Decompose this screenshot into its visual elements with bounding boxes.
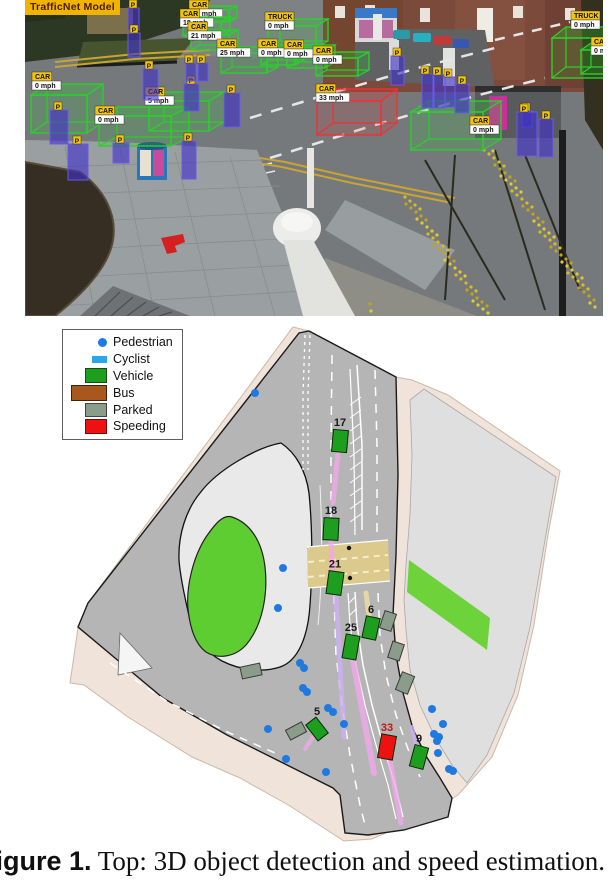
tag-text: 0 mph bbox=[316, 57, 337, 64]
map-pedestrian-dot bbox=[329, 708, 337, 716]
svg-text:P: P bbox=[544, 113, 549, 120]
camera-photo: TrafficNet Model bbox=[25, 0, 603, 316]
leaf bbox=[566, 271, 569, 274]
tag-text: CAR bbox=[287, 42, 302, 49]
leaf bbox=[515, 193, 518, 196]
svg-text:P: P bbox=[460, 78, 465, 85]
leaf bbox=[592, 298, 595, 301]
legend-parked-icon bbox=[75, 403, 107, 417]
leaf bbox=[582, 290, 585, 293]
vehicle-speed-number: 33 bbox=[381, 722, 393, 734]
leaf bbox=[464, 281, 467, 284]
map-vehicle: 18 bbox=[323, 505, 339, 540]
caption-label: Figure 1. bbox=[0, 846, 92, 876]
map-pedestrian-dot bbox=[322, 768, 330, 776]
leaf bbox=[368, 302, 371, 305]
leaf bbox=[502, 164, 505, 167]
svg-text:P: P bbox=[187, 57, 192, 64]
tag-text: CAR bbox=[35, 74, 50, 81]
legend-label: Parked bbox=[113, 403, 153, 417]
leaf bbox=[419, 214, 422, 217]
parked-car-red bbox=[433, 36, 451, 45]
leaf bbox=[530, 205, 533, 208]
leaf bbox=[469, 285, 472, 288]
lamp-post bbox=[559, 130, 566, 316]
leaf bbox=[513, 179, 516, 182]
svg-text:P: P bbox=[229, 87, 234, 94]
tag-text: 0 mph bbox=[98, 117, 119, 124]
leaf bbox=[458, 270, 461, 273]
leaf bbox=[470, 292, 473, 295]
model-name-tag: TrafficNet Model bbox=[25, 0, 120, 15]
leaf bbox=[510, 189, 513, 192]
tag-text: 21 mph bbox=[191, 33, 216, 40]
leaf bbox=[587, 294, 590, 297]
leaf bbox=[547, 231, 550, 234]
map-pedestrian-dot bbox=[303, 688, 311, 696]
vehicle-speed-number: 6 bbox=[368, 604, 374, 616]
map-legend: PedestrianCyclistVehicleBusParkedSpeedin… bbox=[62, 329, 183, 440]
map-pedestrian-dot bbox=[340, 720, 348, 728]
leaf bbox=[437, 247, 440, 250]
detection-pedestrian: P bbox=[128, 25, 140, 57]
leaf bbox=[499, 174, 502, 177]
photo-scene: CAR17 mphCAR18 mphCAR21 mphCAR25 mphTRUC… bbox=[25, 0, 603, 316]
map-pedestrian-dot bbox=[274, 604, 282, 612]
map-pedestrian-dot bbox=[434, 749, 442, 757]
leaf bbox=[493, 163, 496, 166]
legend-speeding-icon bbox=[75, 419, 107, 434]
leaf bbox=[532, 219, 535, 222]
svg-text:P: P bbox=[522, 106, 527, 113]
leaf bbox=[418, 207, 421, 210]
leaf bbox=[443, 258, 446, 261]
map-pedestrian-dot bbox=[251, 389, 259, 397]
leaf bbox=[424, 218, 427, 221]
legend-label: Speeding bbox=[113, 419, 166, 433]
tag-text: CAR bbox=[316, 48, 331, 55]
leaf bbox=[526, 208, 529, 211]
leaf bbox=[565, 264, 568, 267]
tag-text: 0 mph bbox=[574, 22, 595, 29]
map-pedestrian-dot bbox=[264, 725, 272, 733]
tag-text: CAR bbox=[594, 39, 603, 46]
leaf bbox=[559, 253, 562, 256]
svg-text:P: P bbox=[435, 69, 440, 76]
leaf bbox=[447, 255, 450, 258]
leaf bbox=[452, 259, 455, 262]
legend-vehicle-icon bbox=[75, 368, 107, 383]
legend-label: Pedestrian bbox=[113, 335, 173, 349]
legend-label: Vehicle bbox=[113, 369, 153, 383]
leaf bbox=[570, 268, 573, 271]
tag-text: TRUCK bbox=[574, 13, 599, 20]
tag-text: CAR bbox=[220, 41, 235, 48]
leaf bbox=[580, 276, 583, 279]
leaf bbox=[413, 203, 416, 206]
detection-pedestrian: P bbox=[517, 104, 537, 156]
leaf bbox=[431, 236, 434, 239]
tag-text: 0 mph bbox=[473, 127, 494, 134]
leaf bbox=[453, 266, 456, 269]
tag-text: 33 mph bbox=[319, 95, 344, 102]
leaf bbox=[480, 300, 483, 303]
svg-text:P: P bbox=[131, 2, 136, 9]
figure-caption: Figure 1. Top: 3D object detection and s… bbox=[0, 846, 605, 877]
tag-text: TRUCK bbox=[268, 14, 293, 21]
window bbox=[420, 8, 430, 22]
leaf bbox=[508, 175, 511, 178]
leaf bbox=[553, 242, 556, 245]
leaf bbox=[441, 244, 444, 247]
leaf bbox=[569, 261, 572, 264]
vehicle-speed-number: 21 bbox=[329, 559, 341, 571]
tag-text: 0 mph bbox=[594, 48, 603, 55]
leaf bbox=[549, 245, 552, 248]
vehicle-speed-number: 5 bbox=[314, 706, 320, 718]
map-pedestrian-dot bbox=[439, 720, 447, 728]
tag-text: CAR bbox=[192, 2, 207, 9]
leaf bbox=[459, 277, 462, 280]
svg-text:P: P bbox=[147, 63, 152, 70]
tag-text: 25 mph bbox=[220, 50, 245, 57]
svg-text:P: P bbox=[132, 27, 137, 34]
leaf bbox=[425, 225, 428, 228]
leaf bbox=[476, 303, 479, 306]
leaf bbox=[474, 289, 477, 292]
leaf bbox=[497, 160, 500, 163]
leaf bbox=[525, 201, 528, 204]
leaf bbox=[404, 202, 407, 205]
vehicle-speed-number: 9 bbox=[416, 733, 422, 745]
leaf bbox=[403, 195, 406, 198]
svg-text:P: P bbox=[446, 71, 451, 78]
crossing-dot bbox=[348, 576, 352, 580]
leaf bbox=[414, 210, 417, 213]
leaf bbox=[491, 149, 494, 152]
vehicle-speed-number: 18 bbox=[325, 505, 337, 517]
leaf bbox=[531, 212, 534, 215]
tag-text: CAR bbox=[191, 24, 206, 31]
svg-text:P: P bbox=[75, 138, 80, 145]
tag-text: 0 mph bbox=[287, 51, 308, 58]
leaf bbox=[471, 299, 474, 302]
leaf bbox=[548, 238, 551, 241]
leaf bbox=[498, 167, 501, 170]
window bbox=[513, 6, 523, 18]
leaf bbox=[481, 307, 484, 310]
tag-text: CAR bbox=[319, 86, 334, 93]
leaf bbox=[454, 273, 457, 276]
leaf bbox=[514, 186, 517, 189]
svg-text:P: P bbox=[395, 50, 400, 57]
leaf bbox=[520, 197, 523, 200]
white-pillar bbox=[373, 14, 382, 40]
leaf bbox=[463, 274, 466, 277]
leaf bbox=[536, 216, 539, 219]
leaf bbox=[552, 235, 555, 238]
window bbox=[335, 6, 345, 18]
leaf bbox=[560, 260, 563, 263]
leaf bbox=[558, 246, 561, 249]
legend-item-cyclist: Cyclist bbox=[75, 351, 173, 368]
leaf bbox=[542, 227, 545, 230]
leaf bbox=[509, 182, 512, 185]
leaf bbox=[588, 301, 591, 304]
leaf bbox=[519, 190, 522, 193]
legend-cyclist-icon bbox=[75, 356, 107, 363]
leaf bbox=[465, 288, 468, 291]
tag-text: 0 mph bbox=[35, 83, 56, 90]
cctv-pole bbox=[307, 148, 314, 208]
leaf bbox=[576, 279, 579, 282]
cctv-dome-top bbox=[281, 212, 313, 232]
crossing-dot bbox=[347, 546, 351, 550]
detection-car-speeding: CAR33 mph bbox=[316, 84, 397, 135]
leaf bbox=[448, 262, 451, 265]
leaf bbox=[581, 283, 584, 286]
leaf bbox=[408, 199, 411, 202]
legend-pedestrian-icon bbox=[75, 338, 107, 347]
leaf bbox=[504, 178, 507, 181]
ad-column-poster bbox=[140, 150, 151, 176]
leaf bbox=[503, 171, 506, 174]
map-pedestrian-dot bbox=[449, 767, 457, 775]
leaf bbox=[541, 220, 544, 223]
svg-text:P: P bbox=[423, 68, 428, 75]
legend-item-pedestrian: Pedestrian bbox=[75, 334, 173, 351]
leaf bbox=[442, 251, 445, 254]
tag-text: CAR bbox=[183, 11, 198, 18]
leaf bbox=[537, 223, 540, 226]
tag-text: 0 mph bbox=[268, 23, 289, 30]
leaf bbox=[430, 229, 433, 232]
svg-text:P: P bbox=[186, 135, 191, 142]
leaf bbox=[435, 233, 438, 236]
parked-car-cyan bbox=[413, 33, 431, 42]
leaf bbox=[564, 257, 567, 260]
leaf bbox=[436, 240, 439, 243]
leaf bbox=[487, 152, 490, 155]
tag-text: CAR bbox=[473, 118, 488, 125]
svg-text:P: P bbox=[199, 57, 204, 64]
vehicle-speed-number: 25 bbox=[345, 622, 357, 634]
leaf bbox=[538, 230, 541, 233]
parked-car-teal bbox=[393, 30, 410, 39]
svg-text:P: P bbox=[56, 104, 61, 111]
tag-text: 0 mph bbox=[261, 50, 282, 57]
leaf bbox=[485, 304, 488, 307]
ad-column-poster bbox=[153, 150, 164, 176]
map-vehicle: 17 bbox=[332, 417, 349, 453]
bus-shelter-roof bbox=[475, 86, 561, 92]
leaf bbox=[575, 272, 578, 275]
leaf bbox=[409, 206, 412, 209]
tag-text: CAR bbox=[98, 108, 113, 115]
map-pedestrian-dot bbox=[279, 564, 287, 572]
leaf bbox=[492, 156, 495, 159]
svg-text:P: P bbox=[118, 137, 123, 144]
leaf bbox=[420, 221, 423, 224]
leaf bbox=[446, 248, 449, 251]
map-pedestrian-dot bbox=[282, 755, 290, 763]
legend-bus-icon bbox=[75, 385, 107, 401]
legend-item-speeding: Speeding bbox=[75, 418, 173, 435]
leaf bbox=[586, 287, 589, 290]
parked-car-blue bbox=[453, 39, 469, 48]
map-pedestrian-dot bbox=[428, 705, 436, 713]
leaf bbox=[593, 305, 596, 308]
leaf bbox=[369, 309, 372, 312]
leaf bbox=[521, 204, 524, 207]
legend-item-bus: Bus bbox=[75, 384, 173, 401]
leaf bbox=[415, 217, 418, 220]
legend-label: Bus bbox=[113, 386, 135, 400]
leaf bbox=[432, 243, 435, 246]
leaf bbox=[571, 275, 574, 278]
legend-item-parked: Parked bbox=[75, 401, 173, 418]
map-pedestrian-dot bbox=[433, 737, 441, 745]
leaf bbox=[543, 234, 546, 237]
leaf bbox=[426, 232, 429, 235]
map-pedestrian-dot bbox=[300, 664, 308, 672]
leaf bbox=[486, 311, 489, 314]
tag-text: CAR bbox=[261, 41, 276, 48]
leaf bbox=[475, 296, 478, 299]
leaf bbox=[554, 249, 557, 252]
legend-item-vehicle: Vehicle bbox=[75, 368, 173, 385]
vehicle-speed-number: 17 bbox=[334, 417, 346, 429]
leaf bbox=[577, 286, 580, 289]
caption-text: Top: 3D object detection and speed estim… bbox=[92, 846, 606, 876]
legend-label: Cyclist bbox=[113, 352, 150, 366]
